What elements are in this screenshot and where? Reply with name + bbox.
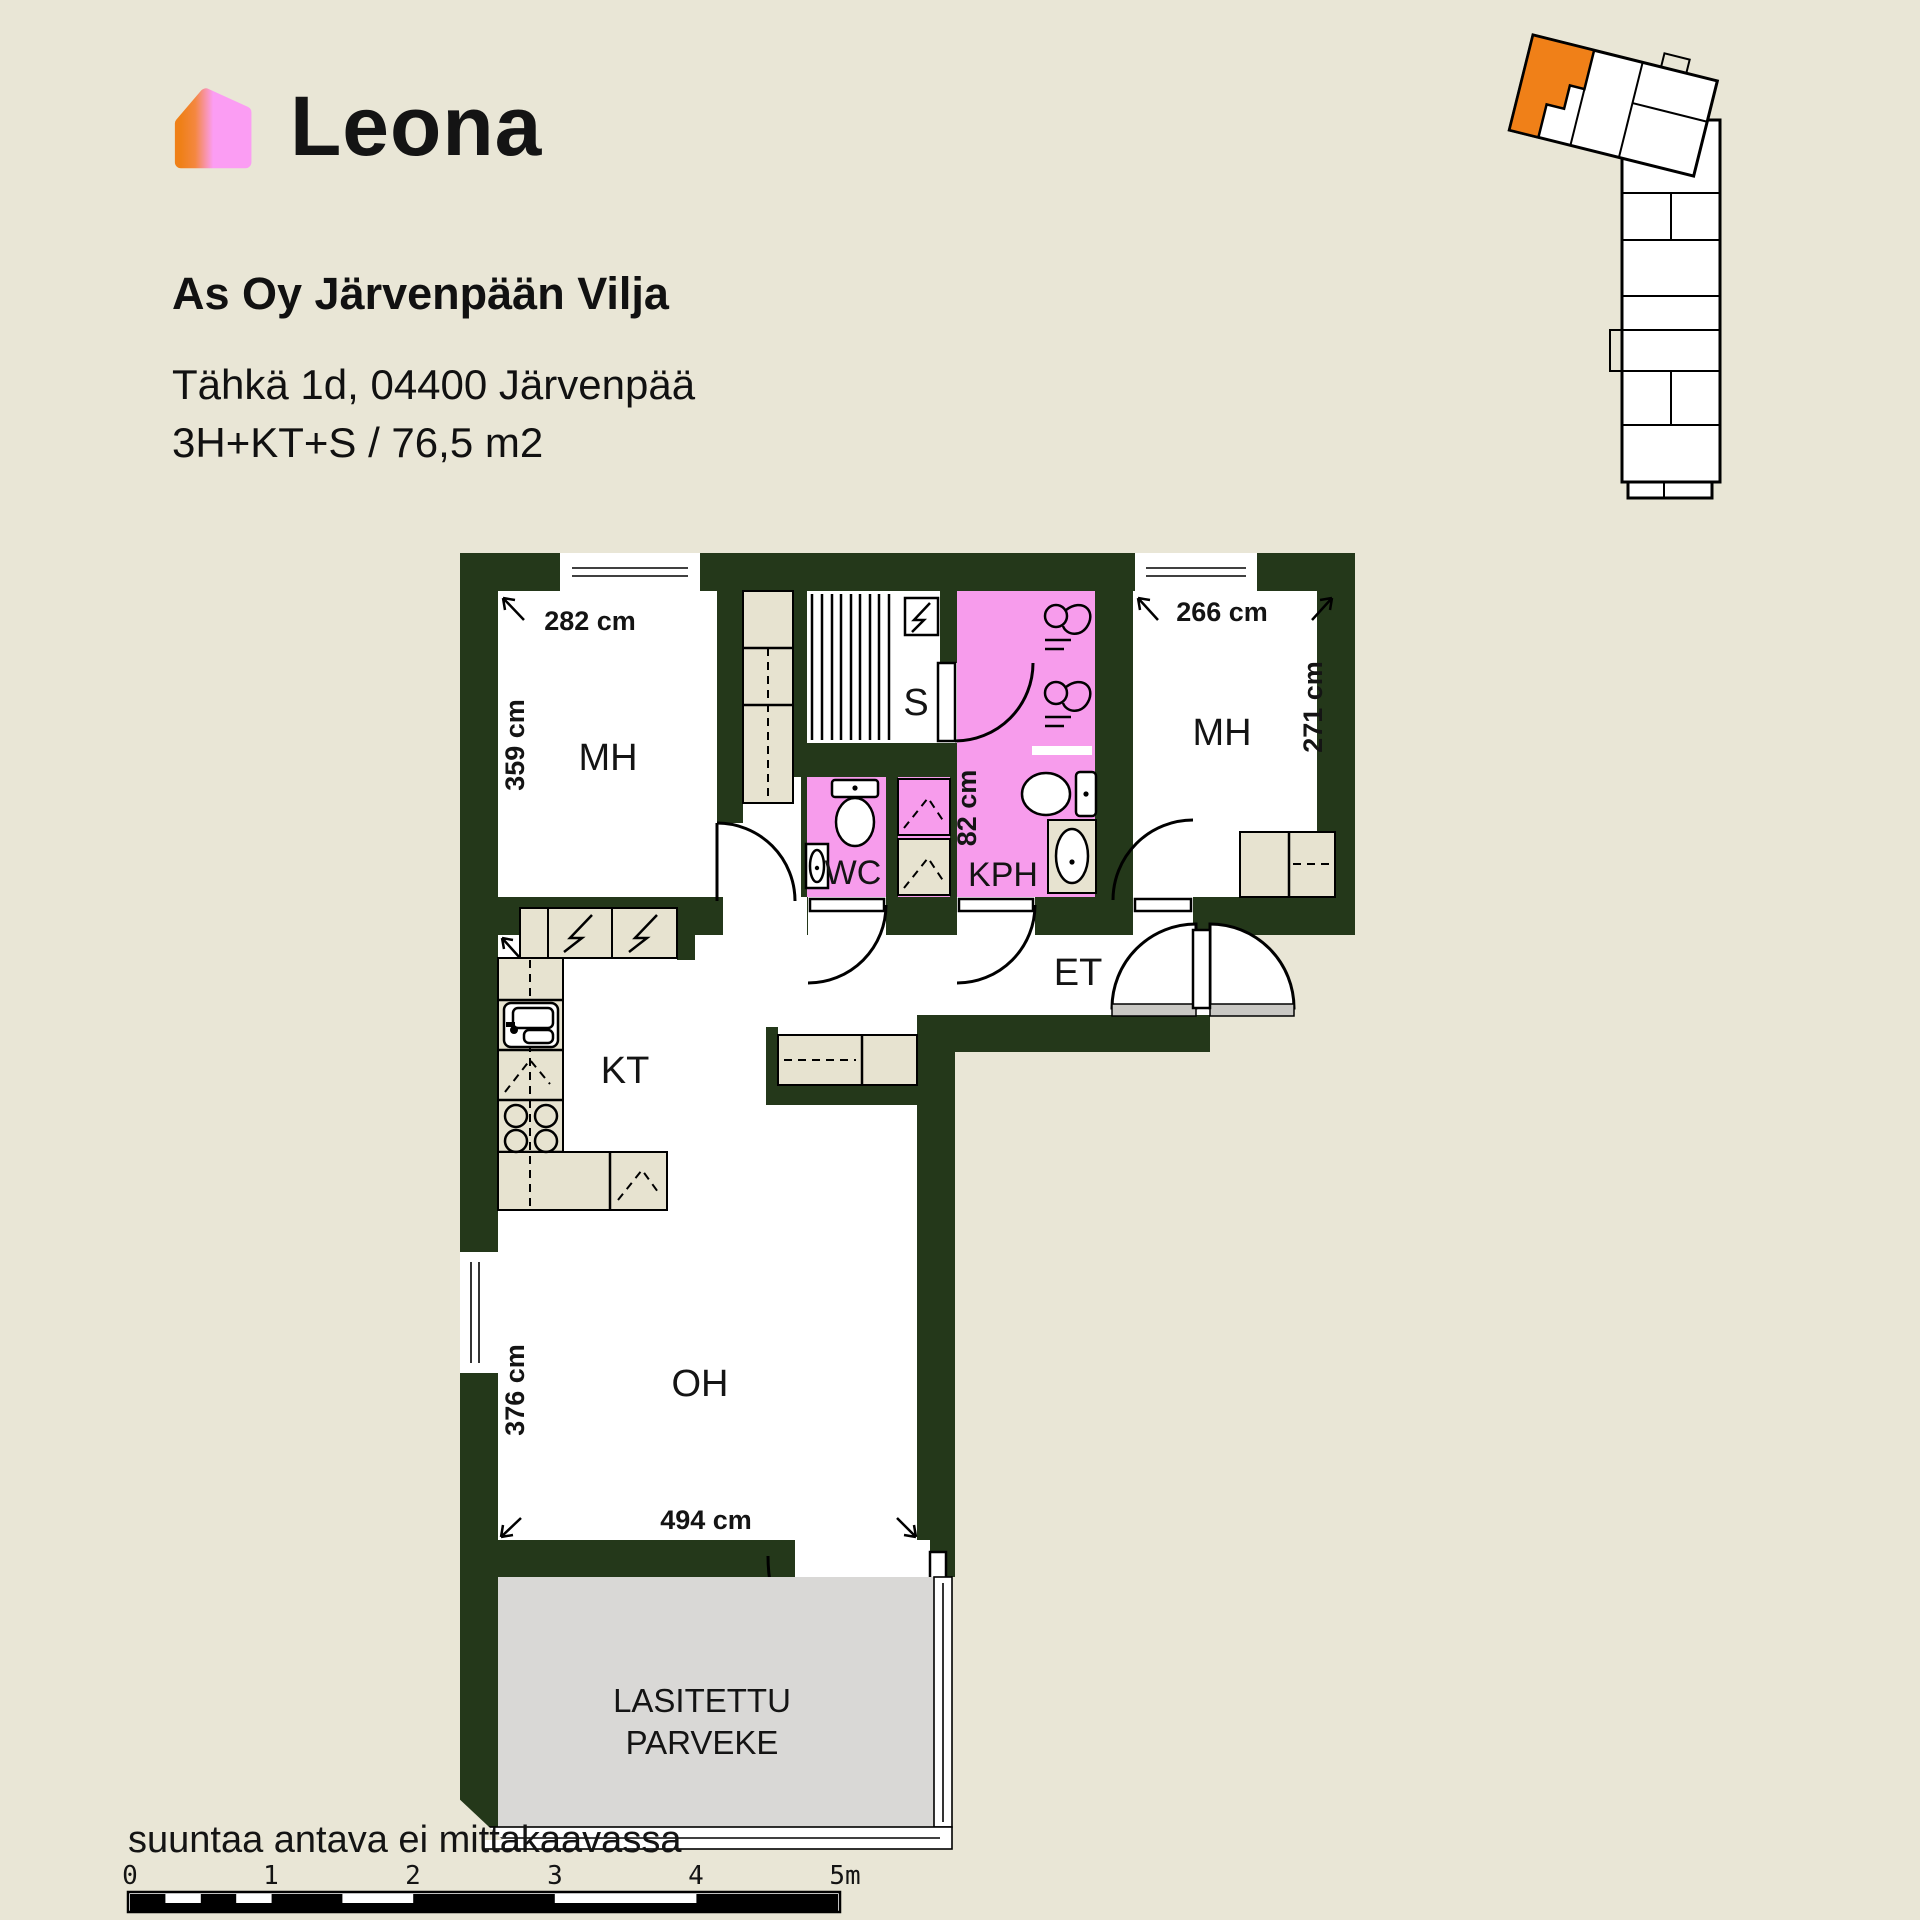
scale-5m: 5m — [829, 1861, 860, 1891]
scale-0: 0 — [122, 1861, 138, 1891]
wardrobe-mh1 — [743, 591, 793, 803]
label-bedroom2: MH — [1192, 712, 1251, 754]
toilet-wc-icon — [832, 780, 878, 846]
kitchen-sink-icon — [504, 1003, 558, 1047]
label-living: OH — [672, 1363, 729, 1405]
label-bathroom: KPH — [968, 856, 1038, 894]
dim-bath-width: 82 cm — [952, 770, 982, 847]
label-sauna: S — [903, 682, 928, 724]
label-kitchen: KT — [601, 1050, 650, 1092]
toilet-kph-icon — [1022, 772, 1096, 816]
label-wc: WC — [825, 854, 882, 892]
dim-mh2-width: 266 cm — [1176, 597, 1268, 627]
electric-box-icon — [905, 598, 938, 635]
window-mh1 — [560, 553, 700, 591]
scale-3: 3 — [547, 1861, 563, 1891]
label-balcony-2: PARVEKE — [626, 1724, 779, 1761]
dim-living-width: 494 cm — [660, 1505, 752, 1535]
label-hallway: ET — [1054, 952, 1103, 994]
label-bedroom1: MH — [578, 737, 637, 779]
dim-mh1-width: 282 cm — [544, 606, 636, 636]
disclaimer-text: suuntaa antava ei mittakaavassa — [128, 1819, 682, 1861]
dim-mh2-depth: 271 cm — [1298, 661, 1328, 753]
floor-plan: MH MH S WC KPH ET KT OH LASITETTU PARVEK… — [0, 0, 1920, 1920]
window-oh — [460, 1252, 498, 1373]
scale-2: 2 — [405, 1861, 421, 1891]
dim-living-depth: 376 cm — [500, 1344, 530, 1436]
wardrobe-mh2 — [1240, 832, 1335, 897]
scale-1: 1 — [263, 1861, 279, 1891]
scale-bar: 0 1 2 3 4 5m — [122, 1861, 860, 1912]
shower-shelf — [1032, 746, 1092, 755]
wardrobe-hallway — [778, 1035, 917, 1085]
sink-kph-icon — [1048, 820, 1096, 893]
dim-mh1-depth: 359 cm — [500, 699, 530, 791]
scale-4: 4 — [688, 1861, 704, 1891]
label-balcony-1: LASITETTU — [613, 1682, 791, 1719]
window-mh2 — [1135, 553, 1257, 591]
